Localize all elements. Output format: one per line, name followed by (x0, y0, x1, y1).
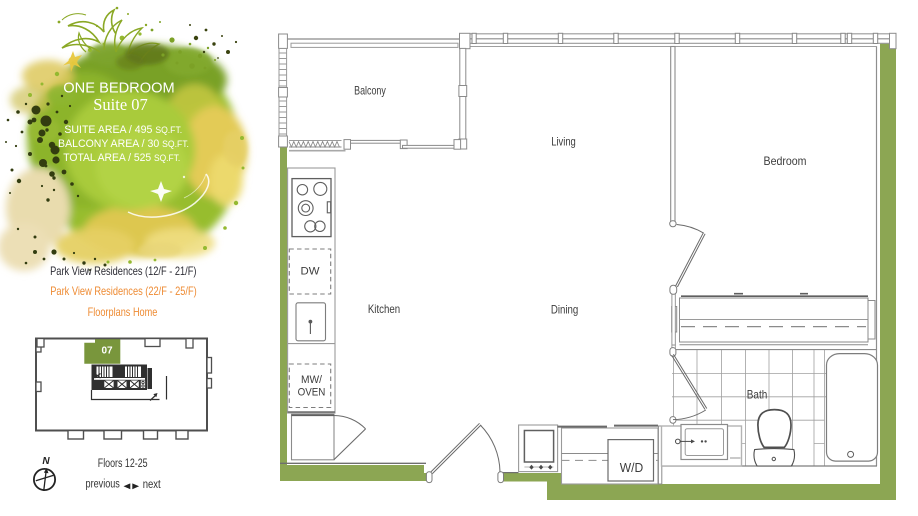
svg-text:next: next (143, 479, 162, 491)
svg-text:SUITE AREA / 495 SQ.FT.: SUITE AREA / 495 SQ.FT. (64, 124, 182, 136)
svg-text:previous: previous (86, 479, 120, 491)
svg-text:N: N (42, 456, 50, 467)
svg-text:Bath: Bath (747, 388, 768, 402)
svg-text:Floors 12-25: Floors 12-25 (98, 458, 148, 470)
svg-text:TOTAL AREA / 525 SQ.FT.: TOTAL AREA / 525 SQ.FT. (63, 152, 180, 164)
svg-text:Living: Living (551, 134, 576, 148)
svg-text:ONE BEDROOM: ONE BEDROOM (63, 80, 174, 97)
svg-text:OVEN: OVEN (298, 386, 326, 398)
svg-text:Balcony: Balcony (354, 83, 386, 97)
svg-text:DW: DW (301, 266, 321, 278)
svg-text:Park View Residences (22/F - 2: Park View Residences (22/F - 25/F) (50, 284, 197, 298)
svg-text:MW/: MW/ (301, 374, 323, 386)
svg-text:Bedroom: Bedroom (764, 154, 807, 168)
svg-text:BALCONY AREA / 30 SQ.FT.: BALCONY AREA / 30 SQ.FT. (58, 138, 189, 150)
svg-text:07: 07 (101, 345, 113, 356)
svg-text:Suite 07: Suite 07 (93, 95, 148, 114)
svg-text:Kitchen: Kitchen (368, 302, 400, 316)
svg-text:Park View Residences (12/F - 2: Park View Residences (12/F - 21/F) (50, 264, 196, 278)
svg-text:W/D: W/D (620, 460, 644, 475)
svg-text:Dining: Dining (551, 302, 578, 316)
svg-text:Floorplans Home: Floorplans Home (88, 305, 158, 319)
